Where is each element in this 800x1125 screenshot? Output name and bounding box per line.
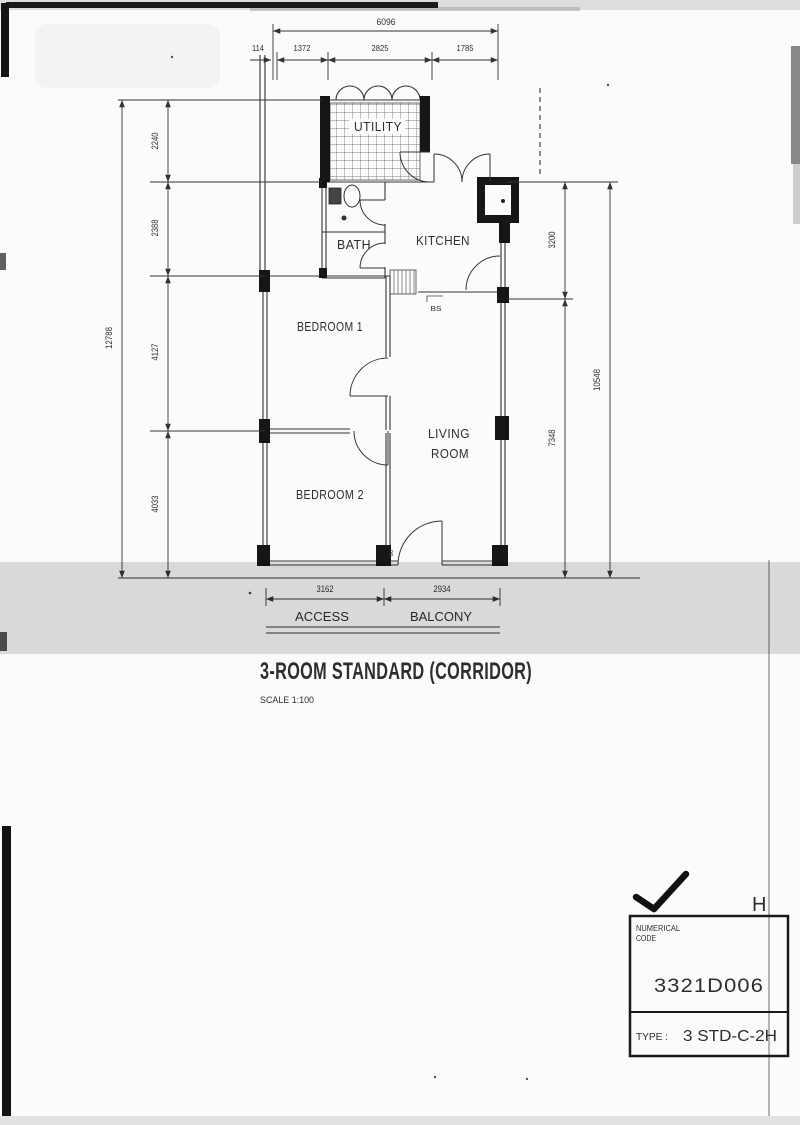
toilet-cistern-icon [329, 188, 341, 204]
scan-speck [249, 592, 252, 595]
wall-block [257, 545, 270, 566]
window-arc [364, 86, 392, 100]
scan-right-streak-fade [793, 164, 800, 224]
kitchen-entry-door-arc [434, 154, 462, 182]
window-arc [392, 86, 420, 100]
dim-top-seg0: 114 [252, 44, 265, 53]
wc-door-arc [360, 200, 385, 225]
scan-right-streak [791, 46, 800, 164]
refuse-chute [477, 177, 519, 223]
wall-block [499, 223, 510, 243]
type-value: 3 STD-C-2H [683, 1028, 777, 1045]
checkmark-icon [636, 874, 686, 909]
dim-left-seg2: 4127 [150, 344, 160, 361]
wall-block [319, 178, 327, 188]
dimensions-bottom [266, 588, 500, 606]
title-block-header-2: CODE [636, 934, 656, 943]
scan-left-tick-1 [0, 253, 6, 270]
room-label-utility: UTILITY [354, 120, 402, 134]
dim-top-seg2: 2825 [372, 44, 390, 53]
room-label-kitchen: KITCHEN [416, 234, 470, 248]
wall-block [319, 268, 327, 278]
bedroom1-door-arc [350, 358, 388, 396]
dim-left-seg0: 2240 [150, 133, 160, 150]
scan-left-bar-bottom [2, 826, 11, 1118]
kitchen-corner-door-arc [466, 256, 500, 290]
drawing-title: 3-ROOM STANDARD (CORRIDOR) [260, 658, 532, 685]
room-label-bedroom2: BEDROOM 2 [296, 488, 364, 502]
scan-speck [434, 1076, 436, 1078]
access-label: ACCESS [295, 610, 349, 624]
room-label-living-2: ROOM [431, 447, 469, 461]
dim-right-seg1: 7348 [547, 430, 557, 447]
scan-left-bar-top [1, 3, 9, 77]
utility-right-wall-block [420, 96, 430, 152]
dim-bottom-seg0: 3162 [317, 584, 334, 594]
dim-left-overall: 12788 [104, 327, 114, 349]
scan-speck [526, 1078, 528, 1080]
bs-marker-bracket [427, 296, 443, 302]
room-label-living-1: LIVING [428, 427, 470, 441]
bedroom2-door-arc [354, 431, 388, 465]
type-label: TYPE : [636, 1032, 668, 1043]
utility-hatch [330, 103, 420, 180]
title-block-header-1: NUMERICAL [636, 924, 681, 933]
toilet-bowl-icon [344, 185, 360, 207]
utility-left-wall-block [320, 96, 330, 182]
window-arc [336, 86, 364, 100]
scanned-floorplan-page: 6096 114 1372 2825 1785 12788 2240 2388 … [0, 0, 800, 1125]
drawing-scale: SCALE 1:100 [260, 695, 314, 706]
dimensions-left [118, 100, 322, 578]
floor-trap-icon [342, 216, 347, 221]
dim-top-seg1: 1372 [294, 44, 312, 53]
door-width-label: 60 [389, 549, 395, 556]
refuse-chute-mark [501, 199, 505, 203]
refuse-chute-inner [485, 185, 511, 215]
bs-marker-label: BS [431, 306, 442, 313]
scan-left-tick-2 [0, 632, 7, 651]
dim-left-seg3: 4033 [150, 496, 160, 513]
scan-speck [607, 84, 609, 86]
balcony-door-arc [398, 521, 442, 565]
dim-left-seg1: 2388 [150, 220, 160, 237]
dim-bottom-seg1: 2934 [434, 584, 451, 594]
wc-fixtures [329, 185, 360, 221]
room-label-bedroom1: BEDROOM 1 [297, 320, 363, 334]
dim-right-seg0: 3200 [547, 232, 557, 249]
wall-block [495, 416, 509, 440]
floorplan-drawing: 6096 114 1372 2825 1785 12788 2240 2388 … [0, 0, 800, 1125]
dim-right-overall: 10548 [592, 369, 602, 391]
kitchen-step [390, 270, 416, 294]
wall-block [259, 270, 270, 292]
revision-letter: H [752, 894, 766, 916]
room-label-bath: BATH [337, 238, 371, 252]
scan-top-border [6, 2, 438, 8]
scan-speck [171, 56, 173, 58]
title-block: H NUMERICAL CODE 3321D006 TYPE : 3 STD-C… [630, 874, 788, 1056]
scan-bottom-strip [0, 1116, 800, 1125]
dim-top-overall: 6096 [377, 17, 396, 27]
scan-smudge [35, 24, 220, 88]
wall-block [497, 287, 509, 303]
wall-block [492, 545, 508, 566]
dim-top-seg3: 1785 [457, 44, 475, 53]
balcony-label: BALCONY [410, 610, 473, 624]
numerical-code: 3321D006 [654, 976, 764, 997]
